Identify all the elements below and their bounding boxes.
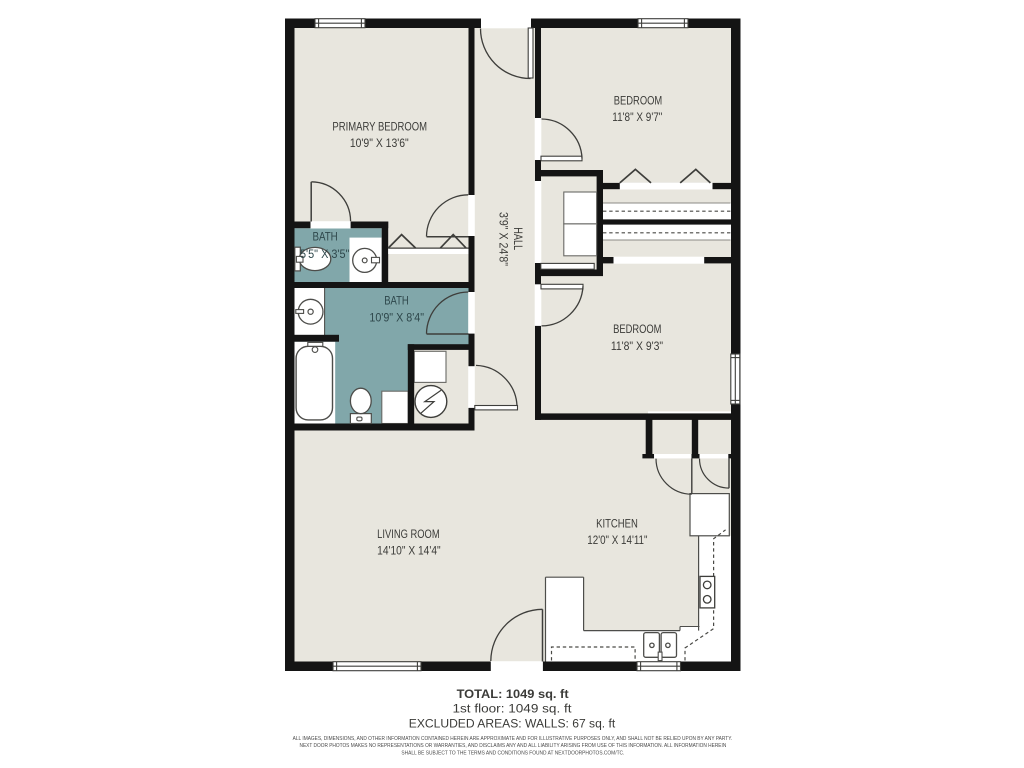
- svg-text:SHALL BE SUBJECT TO THE TERMS: SHALL BE SUBJECT TO THE TERMS AND CONDIT…: [401, 751, 624, 757]
- svg-text:TOTAL: 1049 sq. ft: TOTAL: 1049 sq. ft: [457, 687, 569, 701]
- svg-text:1st floor: 1049 sq. ft: 1st floor: 1049 sq. ft: [453, 701, 573, 715]
- svg-text:HALL: HALL: [511, 227, 525, 250]
- svg-text:KITCHEN: KITCHEN: [596, 517, 638, 531]
- svg-text:NEXT DOOR PHOTOS MAKES NO REPR: NEXT DOOR PHOTOS MAKES NO REPRESENTATION…: [300, 743, 727, 749]
- svg-text:BATH: BATH: [384, 294, 409, 308]
- svg-text:3'9" X 24'8": 3'9" X 24'8": [497, 212, 511, 266]
- svg-text:BATH: BATH: [312, 230, 337, 244]
- svg-text:5'5" X 3'5": 5'5" X 3'5": [300, 247, 349, 261]
- svg-text:LIVING ROOM: LIVING ROOM: [377, 527, 440, 541]
- svg-text:10'9" X 8'4": 10'9" X 8'4": [369, 310, 424, 324]
- svg-text:11'8" X 9'3": 11'8" X 9'3": [611, 339, 663, 353]
- svg-text:10'9" X 13'6": 10'9" X 13'6": [350, 136, 409, 150]
- svg-text:14'10" X 14'4": 14'10" X 14'4": [377, 543, 441, 557]
- svg-text:EXCLUDED AREAS: WALLS: 67 sq.: EXCLUDED AREAS: WALLS: 67 sq. ft: [409, 717, 616, 731]
- svg-text:ALL IMAGES, DIMENSIONS, AND OT: ALL IMAGES, DIMENSIONS, AND OTHER INFORM…: [293, 736, 733, 742]
- svg-text:BEDROOM: BEDROOM: [613, 322, 661, 336]
- svg-text:BEDROOM: BEDROOM: [614, 94, 662, 108]
- svg-text:11'8" X 9'7": 11'8" X 9'7": [612, 110, 662, 124]
- svg-text:12'0" X 14'11": 12'0" X 14'11": [587, 533, 647, 547]
- svg-text:PRIMARY BEDROOM: PRIMARY BEDROOM: [332, 120, 427, 134]
